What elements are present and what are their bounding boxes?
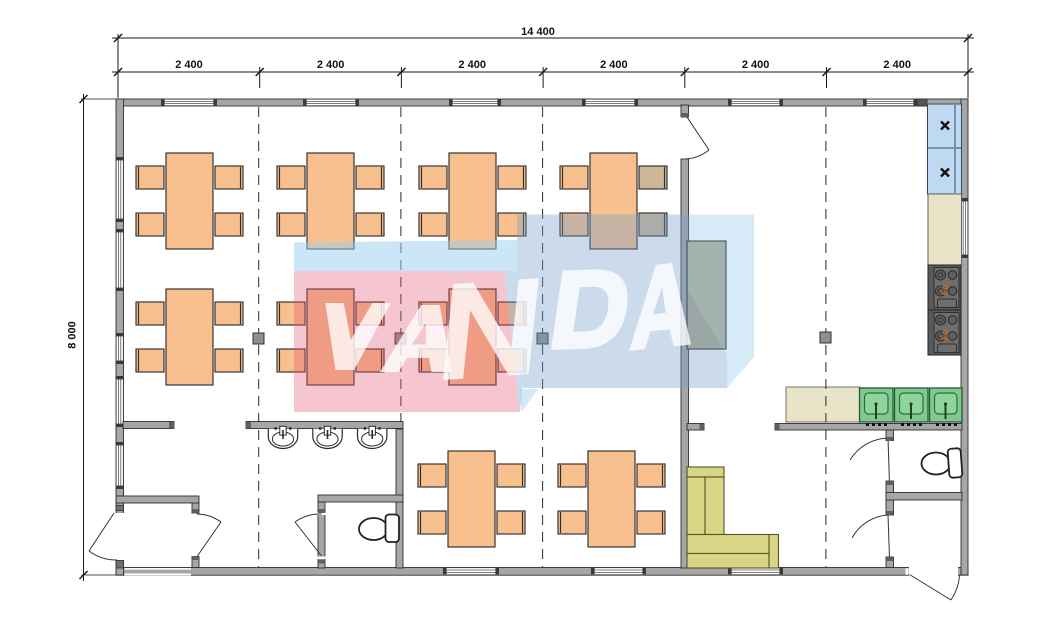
svg-text:2 400: 2 400: [600, 59, 628, 71]
svg-text:14 400: 14 400: [521, 26, 555, 38]
svg-text:Fe: Fe: [940, 284, 950, 295]
svg-text:2 400: 2 400: [883, 59, 911, 71]
svg-text:Fe: Fe: [940, 329, 950, 340]
svg-text:2 400: 2 400: [742, 59, 770, 71]
svg-text:8 000: 8 000: [67, 321, 79, 349]
svg-text:2 400: 2 400: [175, 59, 203, 71]
svg-text:2 400: 2 400: [317, 59, 345, 71]
svg-text:2 400: 2 400: [458, 59, 486, 71]
